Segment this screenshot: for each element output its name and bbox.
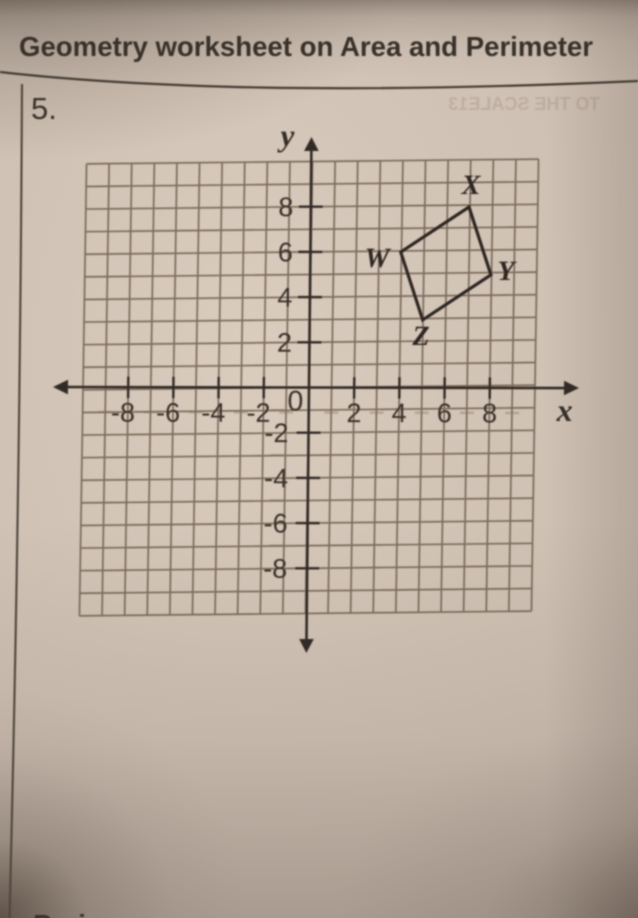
- svg-text:6: 6: [437, 398, 452, 428]
- svg-text:-6: -6: [156, 398, 180, 428]
- svg-text:-4: -4: [264, 463, 288, 493]
- svg-text:8: 8: [482, 398, 497, 428]
- svg-text:5.: 5.: [31, 91, 57, 126]
- svg-text:Perim: Perim: [33, 909, 111, 918]
- svg-text:TO THE SCALE13: TO THE SCALE13: [448, 94, 600, 114]
- svg-text:4: 4: [277, 283, 292, 313]
- svg-text:0: 0: [287, 385, 303, 417]
- svg-text:-2: -2: [264, 418, 288, 448]
- svg-text:-8: -8: [263, 554, 287, 584]
- svg-text:8: 8: [278, 192, 293, 222]
- svg-text:-8: -8: [111, 398, 135, 428]
- svg-text:-6: -6: [263, 509, 287, 539]
- svg-text:Geometry worksheet on Area and: Geometry worksheet on Area and Perimeter: [19, 31, 593, 62]
- svg-text:6: 6: [278, 237, 293, 267]
- svg-text:W: W: [364, 243, 391, 274]
- svg-text:X: X: [461, 170, 482, 201]
- svg-text:-4: -4: [201, 398, 225, 428]
- svg-text:2: 2: [277, 328, 292, 358]
- svg-text:Z: Z: [411, 321, 429, 352]
- svg-text:4: 4: [391, 398, 406, 428]
- svg-text:x: x: [556, 392, 573, 428]
- svg-text:2: 2: [346, 398, 361, 428]
